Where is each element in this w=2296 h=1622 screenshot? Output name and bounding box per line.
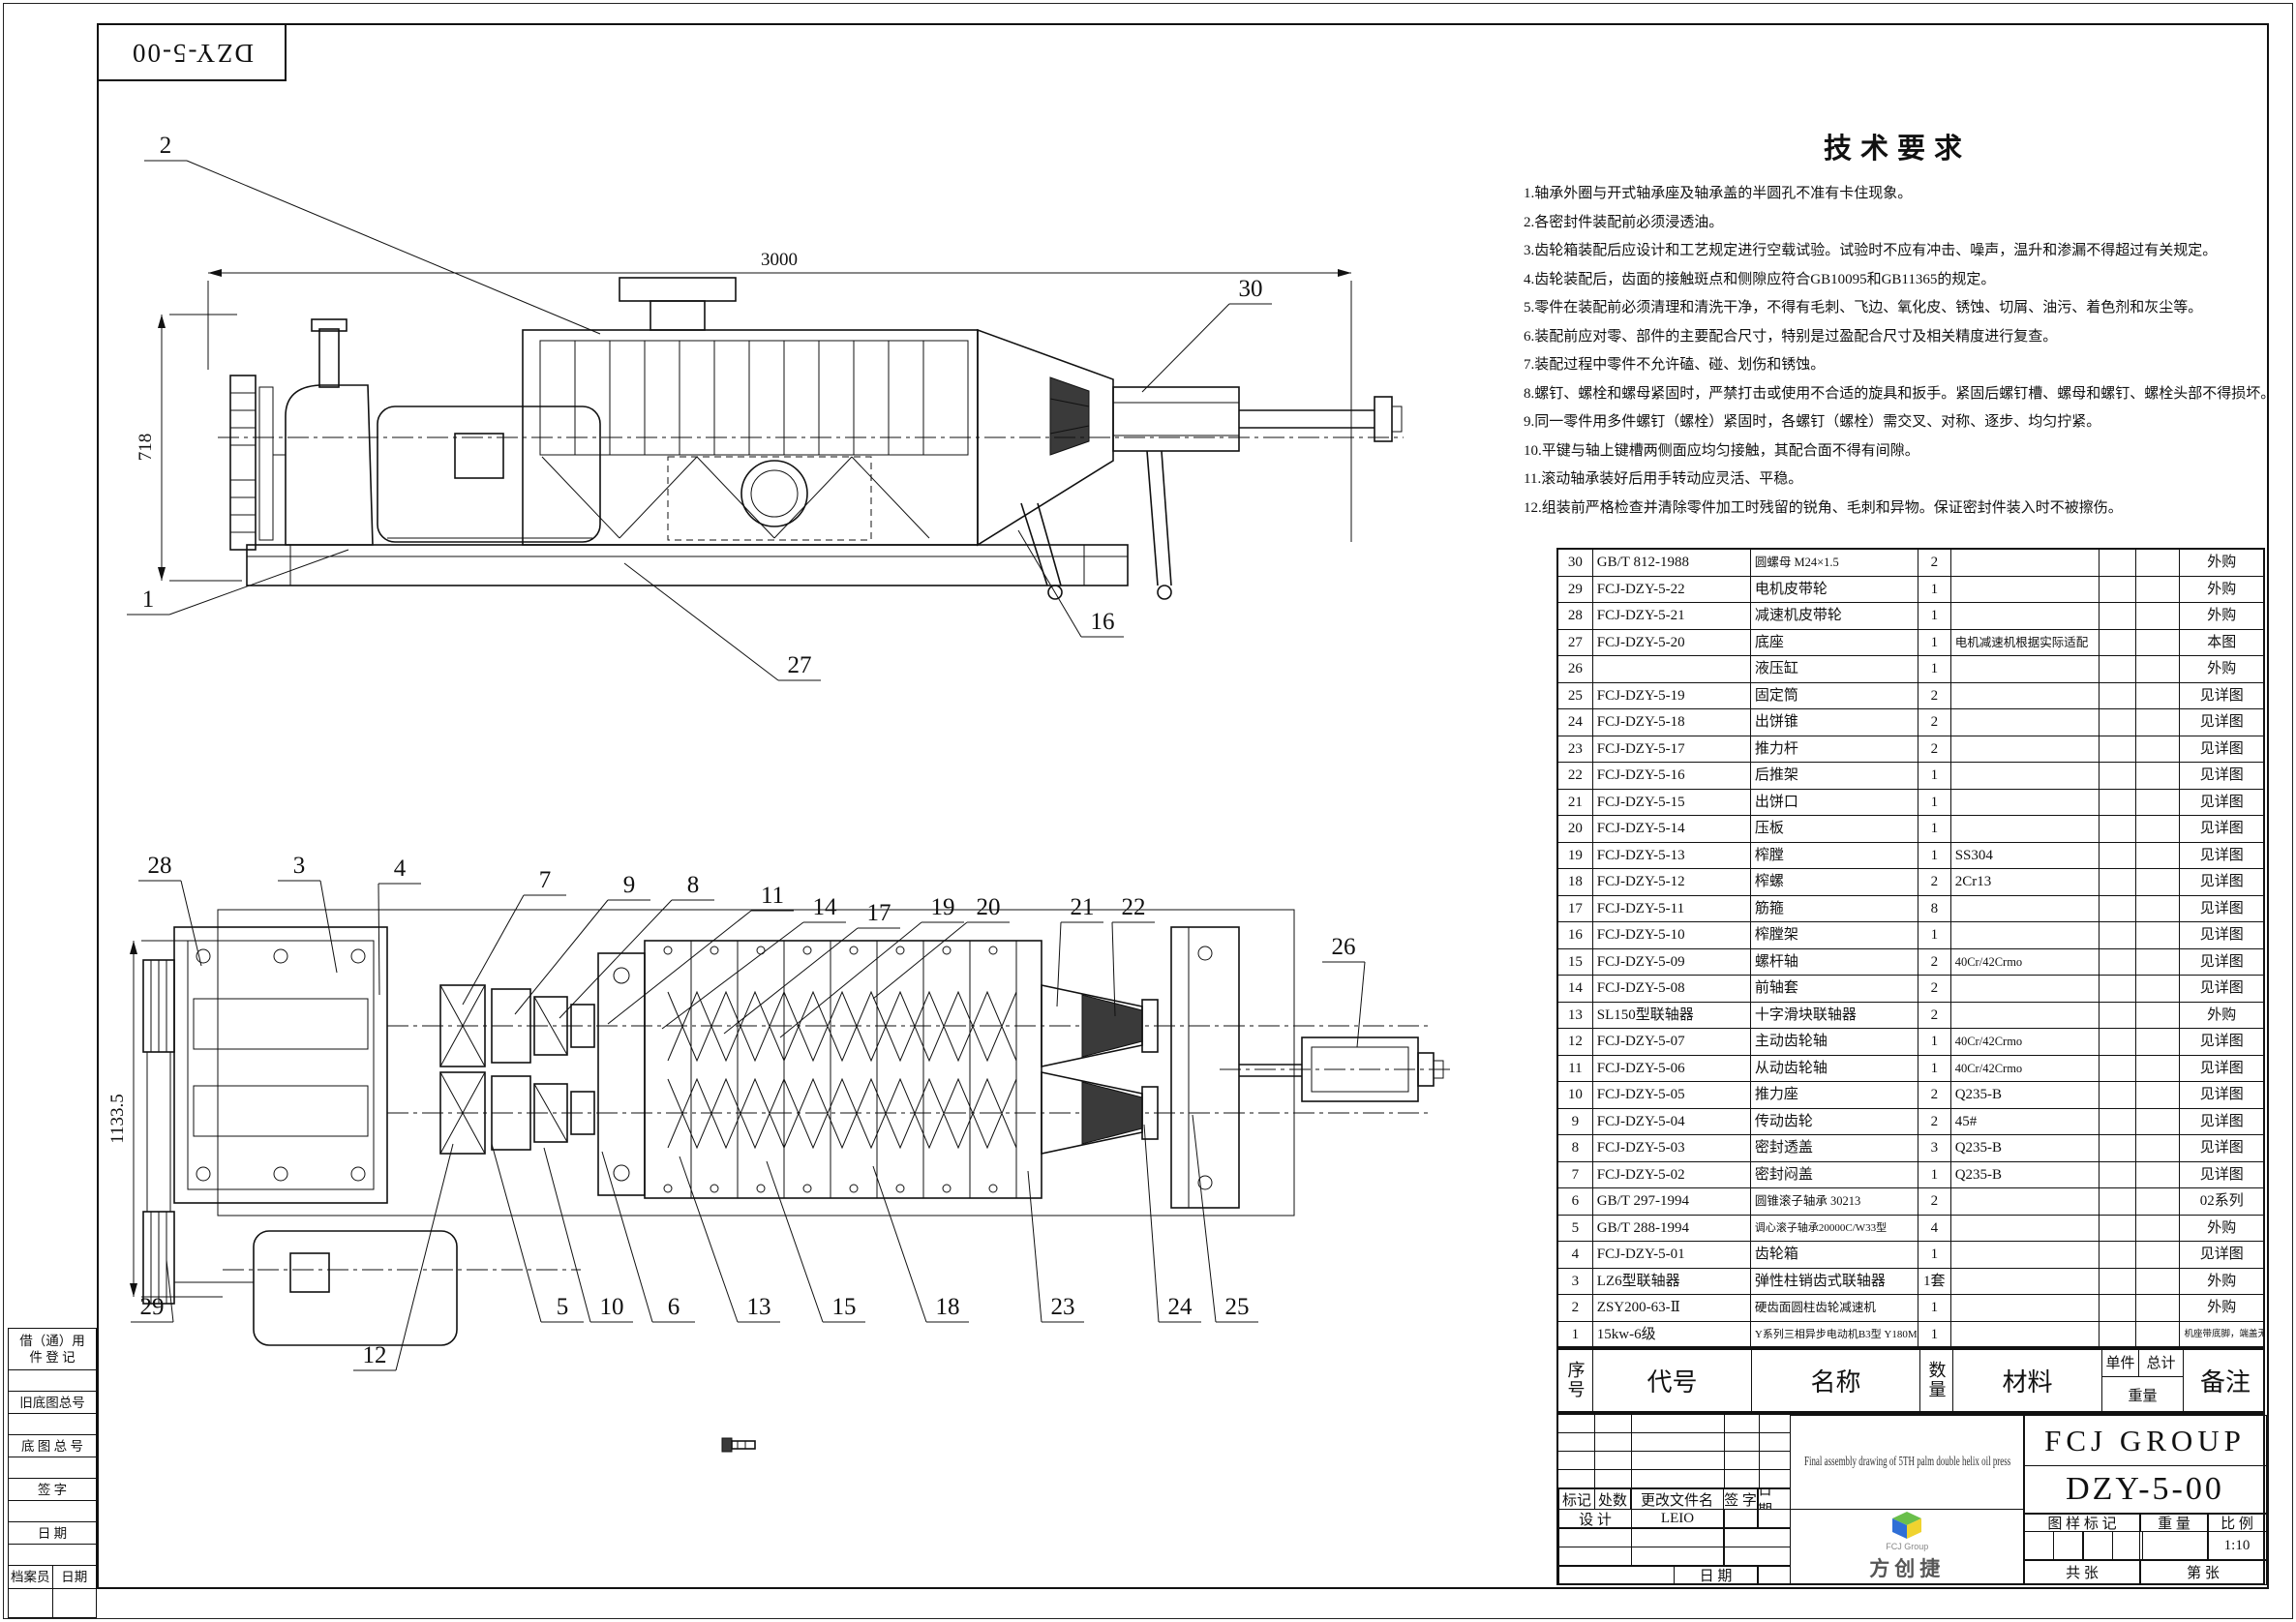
bom-row: 14FCJ-DZY-5-08前轴套2见详图 — [1558, 976, 2263, 1003]
bom-row: 27FCJ-DZY-5-20底座1电机减速机根据实际适配本图 — [1558, 630, 2263, 657]
bom-header-remark: 备注 — [2184, 1348, 2267, 1412]
scale-value: 1:10 — [2207, 1531, 2267, 1561]
bom-header-name: 名称 — [1752, 1348, 1920, 1412]
svg-text:11: 11 — [761, 883, 784, 909]
company-logo: FCJ Group 方创捷 — [1869, 1511, 1945, 1582]
svg-text:3: 3 — [293, 853, 306, 879]
bom-row: 11FCJ-DZY-5-06从动齿轮轴140Cr/42Crmo见详图 — [1558, 1056, 2263, 1083]
svg-text:4: 4 — [394, 856, 407, 882]
tech-requirement-item: 10.平键与轴上键槽两侧面应均匀接触，其配合面不得有间隙。 — [1524, 437, 2274, 466]
tech-requirement-item: 1.轴承外圈与开式轴承座及轴承盖的半圆孔不准有卡住现象。 — [1524, 180, 2274, 209]
svg-text:16: 16 — [1091, 609, 1115, 635]
svg-text:15: 15 — [832, 1294, 857, 1320]
bom-table: 30GB/T 812-1988圆螺母 M24×1.52外购29FCJ-DZY-5… — [1556, 548, 2265, 1350]
callout-27: 27 — [624, 563, 821, 680]
svg-text:28: 28 — [148, 853, 172, 879]
callout-30: 30 — [1142, 276, 1272, 392]
bom-row: 29FCJ-DZY-5-22电机皮带轮1外购 — [1558, 577, 2263, 604]
margin-block-row: 日 期 — [8, 1522, 97, 1545]
callout-13: 13 — [680, 1156, 780, 1322]
margin-block-row — [8, 1589, 97, 1618]
svg-text:20: 20 — [977, 894, 1001, 920]
tech-requirements-title: 技术要求 — [1587, 126, 2207, 166]
svg-text:21: 21 — [1071, 894, 1095, 920]
bom-row: 13SL150型联轴器十字滑块联轴器2外购 — [1558, 1003, 2263, 1030]
svg-text:25: 25 — [1225, 1294, 1250, 1320]
tech-requirement-item: 8.螺钉、螺栓和螺母紧固时，严禁打击或使用不合适的旋具和扳手。紧固后螺钉槽、螺母… — [1524, 380, 2274, 409]
tech-requirement-item: 11.滚动轴承装好后用手转动应灵活、平稳。 — [1524, 466, 2274, 495]
svg-text:17: 17 — [867, 900, 891, 926]
callout-3: 3 — [278, 853, 337, 973]
logo-cube-icon — [1890, 1511, 1923, 1540]
bom-row: 12FCJ-DZY-5-07主动齿轮轴140Cr/42Crmo见详图 — [1558, 1029, 2263, 1056]
bom-row: 24FCJ-DZY-5-18出饼锥2见详图 — [1558, 709, 2263, 736]
label-sign: 签 字 — [1723, 1488, 1759, 1510]
designer-name: LEIO — [1631, 1509, 1725, 1529]
svg-text:27: 27 — [788, 652, 812, 678]
label-date: 日 期 — [1757, 1488, 1791, 1510]
label-count: 处数 — [1594, 1488, 1632, 1510]
tech-requirement-item: 9.同一零件用多件螺钉（螺栓）紧固时，各螺钉（螺栓）需交叉、对称、逐步、均匀拧紧… — [1524, 408, 2274, 437]
bom-header: 序号 代号 名称 数量 材料 单件 总计 重量 备注 — [1556, 1346, 2265, 1413]
bom-row: 23FCJ-DZY-5-17推力杆2见详图 — [1558, 736, 2263, 764]
logo-text-en: FCJ Group — [1886, 1542, 1928, 1551]
margin-blocks: 借（通）用 件 登 记旧底图总号底 图 总 号签 字日 期档案员日期 — [8, 1328, 97, 1618]
drawing-sheet: DZY-5-00 — [0, 0, 2296, 1622]
callout-22: 22 — [1112, 894, 1155, 1016]
bom-row: 19FCJ-DZY-5-13榨膛1SS304见详图 — [1558, 843, 2263, 870]
bom-row: 17FCJ-DZY-5-11筋箍8见详图 — [1558, 896, 2263, 923]
bom-row: 5GB/T 288-1994调心滚子轴承20000C/W33型4外购 — [1558, 1216, 2263, 1243]
svg-text:13: 13 — [747, 1294, 771, 1320]
bom-row: 16FCJ-DZY-5-10榨膛架1见详图 — [1558, 922, 2263, 949]
bom-header-weight: 重量 — [2102, 1377, 2184, 1412]
total-sheets: 共 张 — [2023, 1559, 2141, 1585]
svg-text:23: 23 — [1051, 1294, 1075, 1320]
callout-1: 1 — [127, 550, 348, 615]
bom-row: 18FCJ-DZY-5-12榨螺22Cr13见详图 — [1558, 869, 2263, 896]
margin-block-row: 旧底图总号 — [8, 1392, 97, 1414]
callout-18: 18 — [873, 1166, 969, 1322]
tech-requirement-item: 4.齿轮装配后，齿面的接触斑点和侧隙应符合GB10095和GB11365的规定。 — [1524, 266, 2274, 295]
bom-row: 115kw-6级Y系列三相异步电动机B3型 Y180M1机座带底脚，端盖无凸缘 — [1558, 1322, 2263, 1349]
margin-block-row — [8, 1370, 97, 1392]
svg-text:6: 6 — [668, 1294, 680, 1320]
dimension-718: 718 — [136, 315, 242, 581]
callout-5: 5 — [492, 1144, 584, 1322]
svg-text:26: 26 — [1332, 934, 1356, 960]
svg-text:2: 2 — [160, 133, 172, 159]
bom-row: 9FCJ-DZY-5-04传动齿轮245#见详图 — [1558, 1109, 2263, 1136]
bom-row: 28FCJ-DZY-5-21减速机皮带轮1外购 — [1558, 603, 2263, 630]
callout-7: 7 — [463, 867, 566, 1005]
margin-block-row — [8, 1414, 97, 1435]
company-name: FCJ GROUP — [2023, 1415, 2267, 1466]
svg-text:29: 29 — [140, 1294, 165, 1320]
sheet-number: 第 张 — [2139, 1559, 2267, 1585]
bom-row: 15FCJ-DZY-5-09螺杆轴240Cr/42Crmo见详图 — [1558, 949, 2263, 976]
svg-text:3000: 3000 — [761, 250, 798, 270]
bom-header-total: 总计 — [2139, 1348, 2184, 1377]
side-view — [218, 278, 1404, 599]
tech-requirement-item: 12.组装前严格检查并清除零件加工时残留的锐角、毛刺和异物。保证密封件装入时不被… — [1524, 495, 2274, 524]
svg-text:14: 14 — [813, 894, 838, 920]
annotations: 2301271628347981114171920212226295106131… — [107, 133, 1365, 1370]
callout-2: 2 — [144, 133, 600, 334]
bom-row: 25FCJ-DZY-5-19固定筒2见详图 — [1558, 683, 2263, 710]
svg-text:5: 5 — [557, 1294, 569, 1320]
tech-requirement-item: 2.各密封件装配前必须浸透油。 — [1524, 209, 2274, 238]
bom-row: 6GB/T 297-1994圆锥滚子轴承 30213202系列 — [1558, 1188, 2263, 1216]
svg-text:8: 8 — [687, 872, 700, 898]
dimension-1133.5: 1133.5 — [107, 941, 223, 1297]
bom-row: 26液压缸1外购 — [1558, 656, 2263, 683]
svg-text:22: 22 — [1122, 894, 1146, 920]
margin-block-row — [8, 1457, 97, 1479]
bom-row: 4FCJ-DZY-5-01齿轮箱1见详图 — [1558, 1242, 2263, 1269]
svg-text:24: 24 — [1168, 1294, 1193, 1320]
callout-15: 15 — [767, 1161, 865, 1322]
bom-row: 7FCJ-DZY-5-02密封闷盖1Q235-B见详图 — [1558, 1162, 2263, 1189]
bom-row: 8FCJ-DZY-5-03密封透盖3Q235-B见详图 — [1558, 1135, 2263, 1162]
bom-header-seq: 序号 — [1563, 1361, 1588, 1399]
label-scale: 比 例 — [2207, 1513, 2267, 1532]
svg-text:718: 718 — [136, 434, 156, 462]
svg-text:19: 19 — [931, 894, 955, 920]
bom-row: 3LZ6型联轴器弹性柱销齿式联轴器1套外购 — [1558, 1269, 2263, 1296]
bom-header-code: 代号 — [1593, 1348, 1752, 1412]
bom-row: 22FCJ-DZY-5-16后推架1见详图 — [1558, 763, 2263, 790]
label-file: 更改文件名 — [1630, 1488, 1724, 1510]
label-weight: 重 量 — [2139, 1513, 2209, 1532]
callout-4: 4 — [378, 856, 421, 995]
label-mark: 标记 — [1558, 1488, 1595, 1510]
svg-text:1133.5: 1133.5 — [107, 1094, 128, 1144]
bom-row: 2ZSY200-63-Ⅱ硬齿面圆柱齿轮减速机1外购 — [1558, 1295, 2263, 1322]
svg-text:10: 10 — [600, 1294, 624, 1320]
bom-row: 30GB/T 812-1988圆螺母 M24×1.52外购 — [1558, 550, 2263, 577]
tech-requirement-item: 3.齿轮箱装配后应设计和工艺规定进行空载试验。试验时不应有冲击、噪声，温升和渗漏… — [1524, 237, 2274, 266]
fastener-detail — [722, 1438, 755, 1452]
bom-header-unit: 单件 — [2102, 1348, 2139, 1377]
margin-block-row: 档案员日期 — [8, 1566, 97, 1589]
revision-grid — [1558, 1415, 1791, 1488]
svg-text:18: 18 — [936, 1294, 960, 1320]
label-pattern-mark: 图 样 标 记 — [2023, 1513, 2141, 1532]
logo-text-cn: 方创捷 — [1869, 1553, 1945, 1582]
callout-23: 23 — [1028, 1171, 1084, 1322]
margin-block-row: 底 图 总 号 — [8, 1435, 97, 1457]
label-design: 设 计 — [1558, 1509, 1632, 1529]
bom-header-qty: 数量 — [1924, 1361, 1949, 1399]
margin-block-row — [8, 1545, 97, 1566]
callout-12: 12 — [353, 1144, 453, 1370]
dimension-3000: 3000 — [208, 250, 1351, 542]
margin-block-row: 签 字 — [8, 1479, 97, 1501]
margin-block-row: 借（通）用 件 登 记 — [8, 1328, 97, 1370]
english-title: Final assembly drawing of 5TH palm doubl… — [1804, 1455, 2010, 1470]
bom-row: 21FCJ-DZY-5-15出饼口1见详图 — [1558, 790, 2263, 817]
tech-requirement-item: 6.装配前应对零、部件的主要配合尺寸，特别是过盈配合尺寸及相关精度进行复查。 — [1524, 323, 2274, 352]
svg-text:30: 30 — [1239, 276, 1263, 302]
title-block: 标记 处数 更改文件名 签 字 日 期 设 计 LEIO 日 期 Final a… — [1556, 1413, 2265, 1585]
callout-14: 14 — [662, 894, 846, 1029]
svg-text:1: 1 — [142, 586, 155, 613]
bom-row: 20FCJ-DZY-5-14压板1见详图 — [1558, 816, 2263, 843]
svg-text:7: 7 — [539, 867, 552, 893]
tech-requirements-list: 1.轴承外圈与开式轴承座及轴承盖的半圆孔不准有卡住现象。2.各密封件装配前必须浸… — [1524, 180, 2274, 523]
callout-28: 28 — [138, 853, 201, 966]
margin-block-row — [8, 1501, 97, 1522]
tech-requirement-item: 5.零件在装配前必须清理和清洗干净，不得有毛刺、飞边、氧化皮、锈蚀、切屑、油污、… — [1524, 294, 2274, 323]
callout-24: 24 — [1144, 1125, 1201, 1322]
tech-requirement-item: 7.装配过程中零件不允许磕、碰、划伤和锈蚀。 — [1524, 351, 2274, 380]
svg-text:9: 9 — [623, 872, 636, 898]
svg-text:12: 12 — [363, 1342, 387, 1368]
callout-25: 25 — [1193, 1115, 1258, 1322]
drawing-number: DZY-5-00 — [2023, 1465, 2267, 1515]
bom-header-material: 材料 — [1953, 1348, 2102, 1412]
callout-26: 26 — [1322, 934, 1365, 1047]
bom-row: 10FCJ-DZY-5-05推力座2Q235-B见详图 — [1558, 1082, 2263, 1109]
label-bottom-date: 日 期 — [1674, 1565, 1759, 1585]
